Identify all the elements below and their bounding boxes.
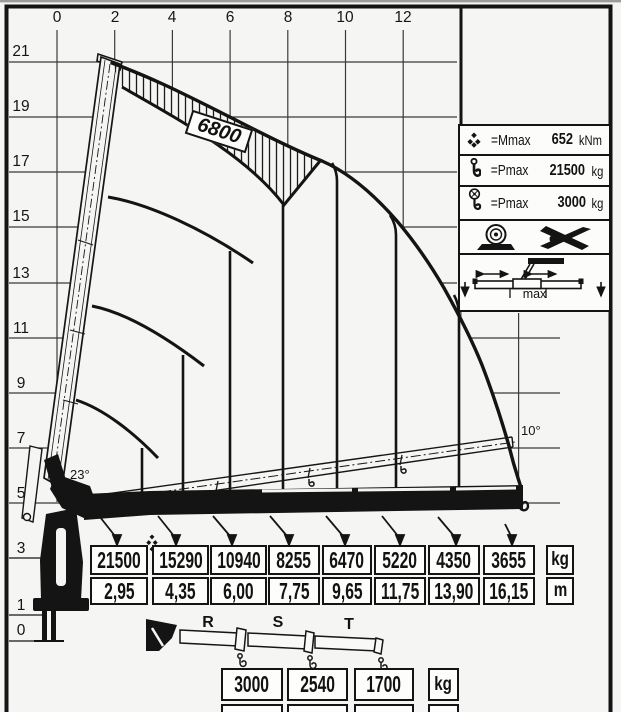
boom-angle-label: 23°: [70, 468, 90, 481]
load-diagram-artwork: [0, 0, 621, 712]
y-axis-tick: 13: [8, 266, 34, 282]
outreach-cell: 2,95: [90, 577, 148, 605]
x-axis-tick: 6: [217, 10, 243, 26]
capacity-cell: 6470: [322, 545, 372, 575]
capacity-cell: 4350: [428, 545, 480, 575]
winch-pmax-value: 3000: [557, 194, 585, 212]
ext-capacity-unit-cell: kg: [428, 668, 459, 701]
x-axis-tick: 0: [44, 10, 70, 26]
capacity-arrows: [100, 516, 516, 545]
ext-capacity-cell: 3000: [221, 668, 283, 701]
winch-pmax-unit: kg: [592, 195, 604, 211]
jib-angle-label: 10°: [521, 424, 541, 437]
y-axis-tick: 17: [8, 154, 34, 170]
x-axis-tick: 8: [275, 10, 301, 26]
extension-label-r: R: [197, 614, 219, 632]
outreach-cell: 16,15: [483, 577, 535, 605]
extension-label-t: T: [338, 616, 360, 634]
y-axis-tick: 7: [8, 431, 34, 447]
equipment-icons-row: [460, 221, 609, 255]
y-axis-tick: 5: [8, 486, 34, 502]
x-axis-tick: 2: [102, 10, 128, 26]
capacity-cell: 15290: [152, 545, 209, 575]
rope-winch-icon: [474, 222, 518, 252]
ext-outreach-cell: 18,60: [221, 704, 283, 712]
y-axis-tick: 0: [8, 623, 34, 639]
mmax-value: 652: [551, 131, 572, 149]
ext-outreach-cell: 23,55: [354, 704, 414, 712]
outreach-cell: 9,65: [322, 577, 372, 605]
outreach-cell: 7,75: [268, 577, 320, 605]
winch-pmax-row: =Pmax 3000 kg: [460, 187, 609, 221]
pmax-unit: kg: [592, 163, 604, 179]
y-axis-tick: 1: [8, 598, 34, 614]
y-axis-tick: 11: [8, 321, 34, 337]
outreach-cell: 13,90: [428, 577, 480, 605]
pmax-label: =Pmax: [491, 162, 529, 179]
y-axis-tick: 15: [8, 209, 34, 225]
y-axis-tick: 19: [8, 99, 34, 115]
winch-hook-icon: [464, 188, 484, 218]
mmax-label: =Mmax: [491, 132, 531, 149]
capacity-cell: 8255: [268, 545, 320, 575]
x-axis-tick: 10: [332, 10, 358, 26]
ext-capacity-cell: 2540: [287, 668, 348, 701]
outreach-cell: 4,35: [152, 577, 209, 605]
pmax-row: =Pmax 21500 kg: [460, 156, 609, 187]
lift-cylinder: [22, 446, 42, 522]
capacity-unit-cell: kg: [546, 545, 574, 575]
capacity-cell: 21500: [90, 545, 148, 575]
crane-load-chart: 0 2 4 6 8 10 12 21 19 17 15 13 11 9 7 5 …: [0, 0, 621, 712]
x-axis-tick: 12: [390, 10, 416, 26]
outreach-cell: 6,00: [210, 577, 267, 605]
outreach-unit-cell: m: [546, 577, 574, 605]
outreach-cell: 11,75: [374, 577, 426, 605]
mmax-unit: kNm: [579, 132, 602, 148]
y-axis-tick: 3: [8, 541, 34, 557]
outrigger-max-row: max: [460, 255, 609, 308]
ext-capacity-cell: 1700: [354, 668, 414, 701]
extension-label-s: S: [267, 614, 289, 632]
y-axis-tick: 9: [8, 376, 34, 392]
capacity-cell: 10940: [210, 545, 267, 575]
capacity-cell: 3655: [483, 545, 535, 575]
ext-outreach-unit-cell: m: [428, 704, 459, 712]
pmax-value: 21500: [549, 162, 585, 180]
crossed-jib-icon: [537, 222, 595, 252]
x-axis-tick: 4: [159, 10, 185, 26]
hook-icon: [464, 158, 484, 183]
ext-outreach-cell: 21,10: [287, 704, 348, 712]
working-envelope-fill: [58, 63, 523, 500]
capacity-cell: 5220: [374, 545, 426, 575]
ratings-info-box: =Mmax 652 kNm =Pmax 21500 kg =Pmax 3000 …: [458, 124, 611, 312]
winch-pmax-label: =Pmax: [491, 195, 529, 212]
moment-diamonds-icon: [464, 132, 484, 148]
outrigger-max-label: max: [523, 288, 547, 301]
y-axis-tick: 21: [8, 44, 34, 60]
mmax-row: =Mmax 652 kNm: [460, 126, 609, 156]
